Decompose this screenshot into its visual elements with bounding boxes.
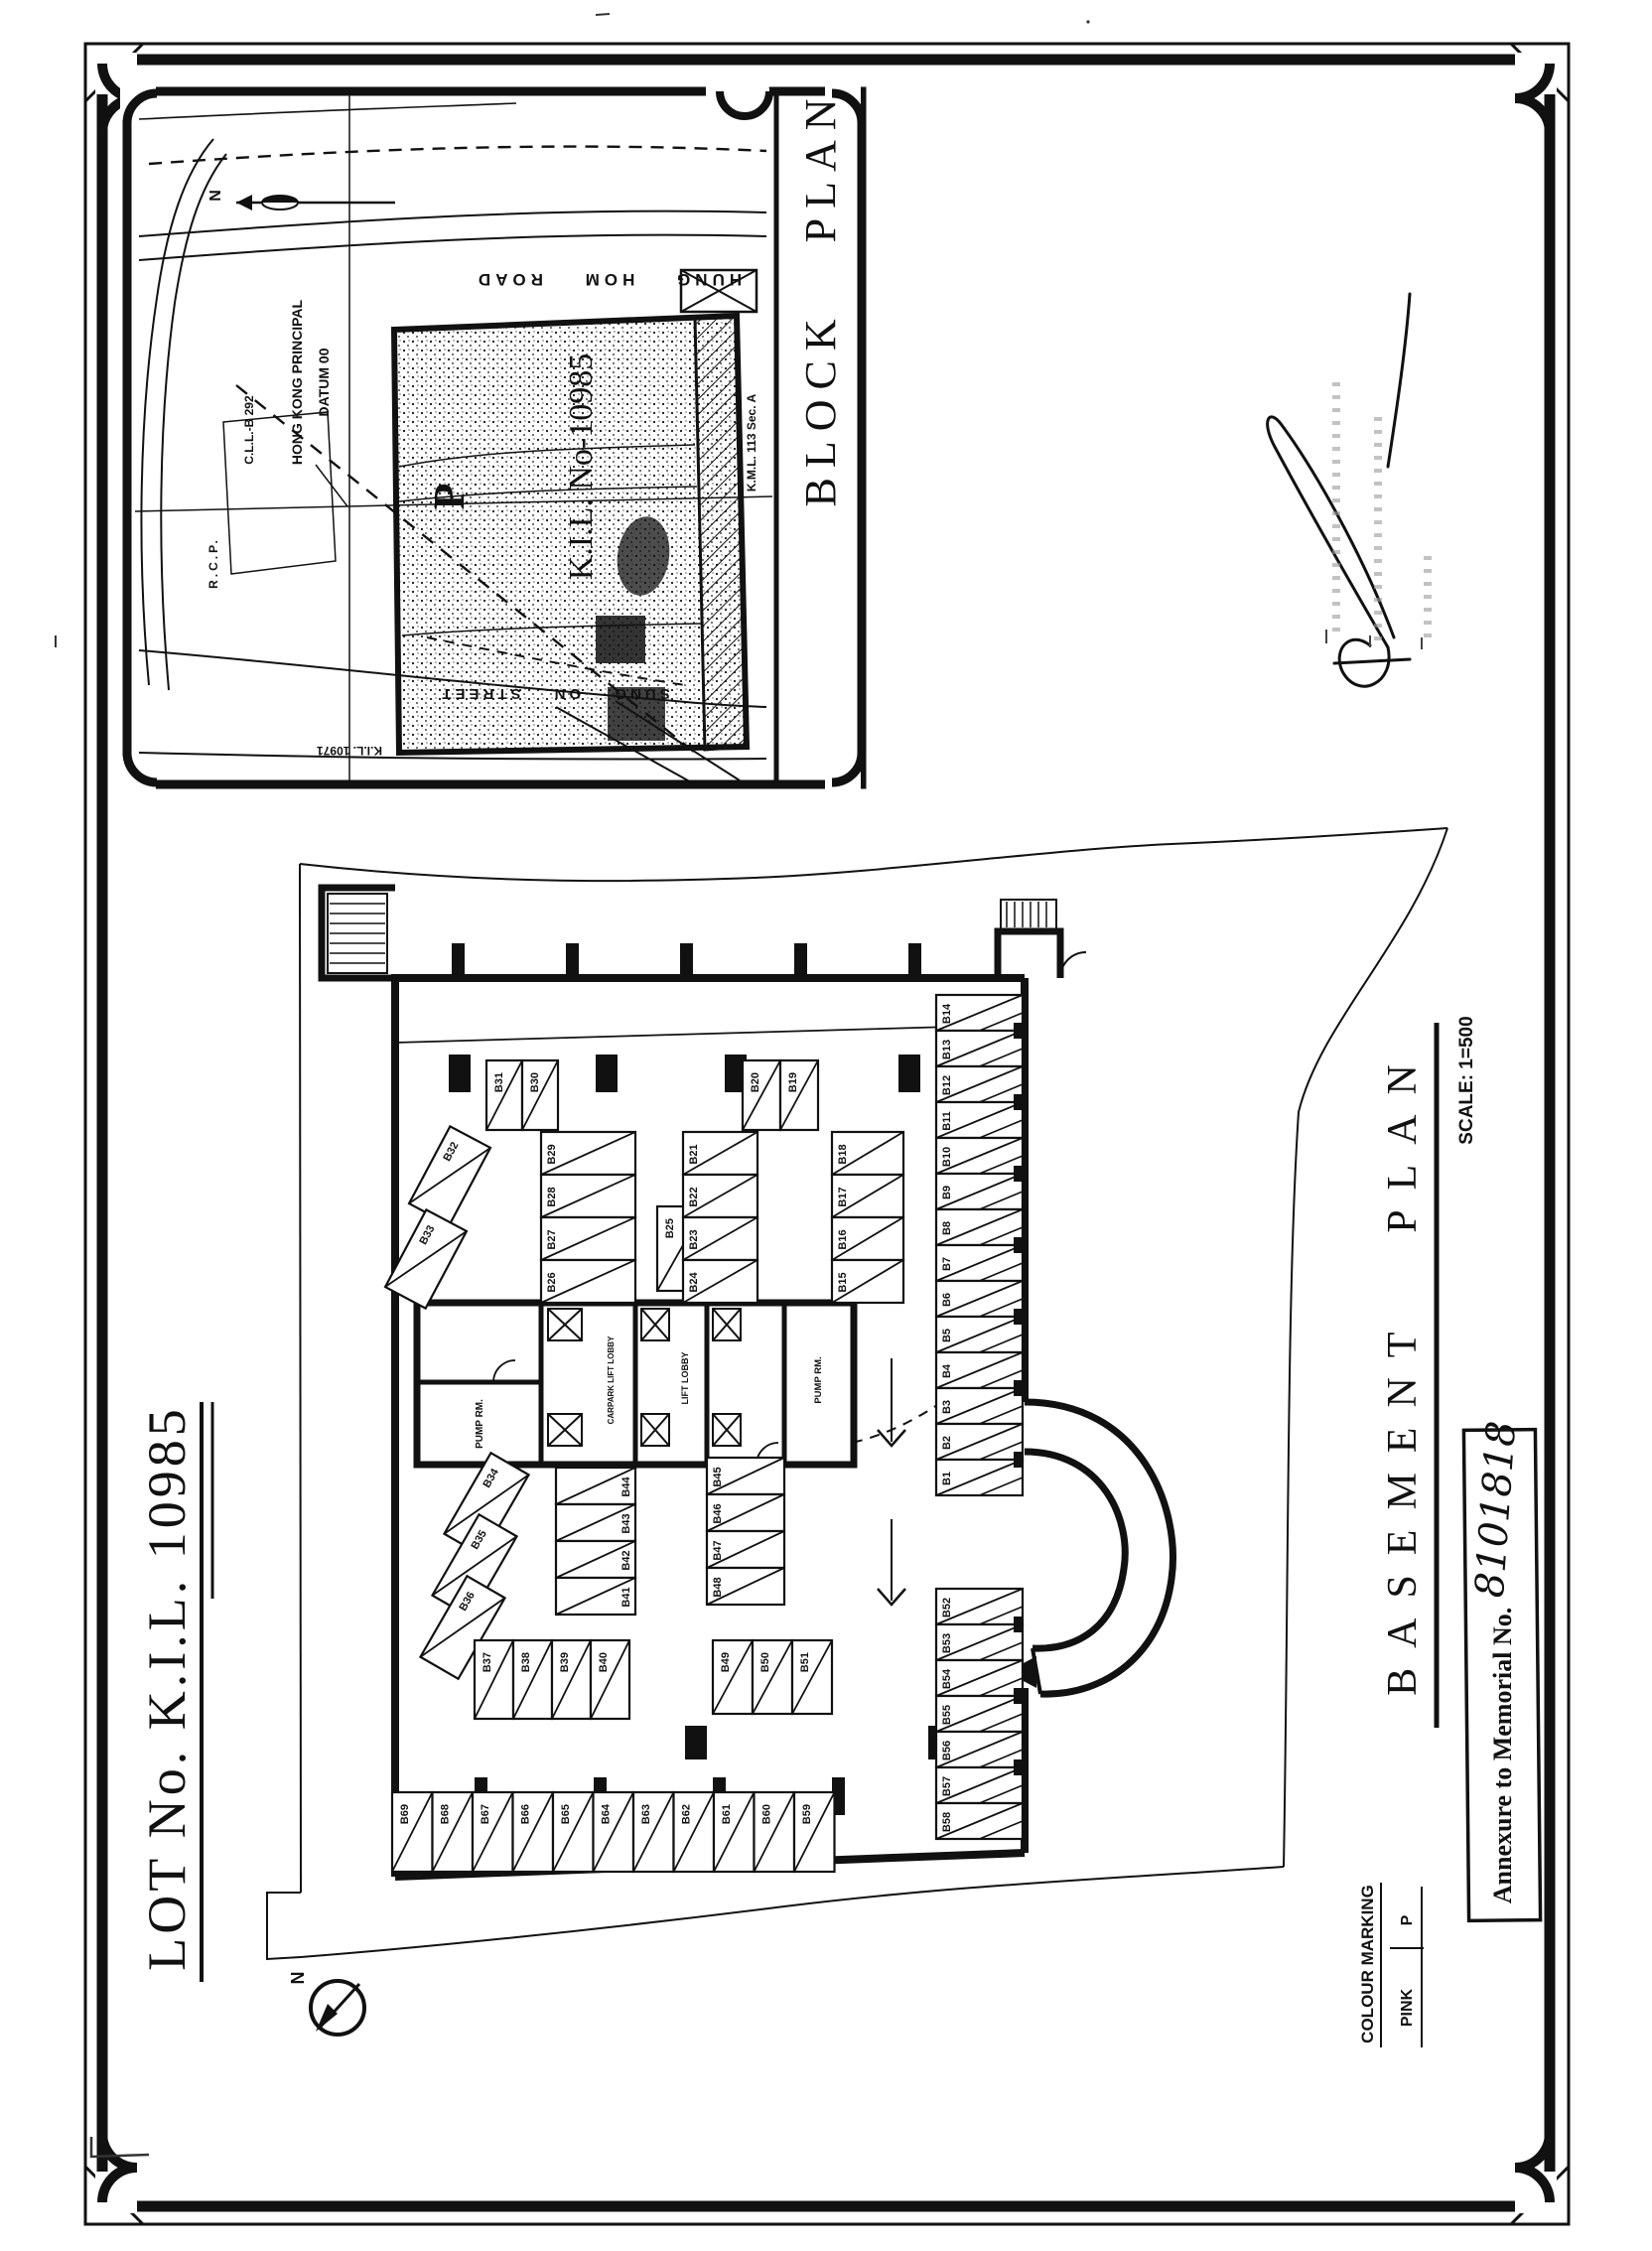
stall-label-B27: B27 — [546, 1229, 558, 1249]
stall-label-B42: B42 — [620, 1550, 632, 1570]
stall-label-B9: B9 — [941, 1186, 953, 1199]
stall-group-col-29-26: B29B28B27B26 — [541, 1132, 635, 1303]
stall-label-B30: B30 — [529, 1072, 541, 1092]
stall-label-B8: B8 — [941, 1221, 953, 1235]
colour-row-colour: PINK — [1399, 1988, 1416, 2027]
north-arrow-basement — [311, 1981, 364, 2035]
parking-stall-B9: B9 — [936, 1174, 1023, 1209]
stall-label-B47: B47 — [712, 1540, 724, 1560]
aisle-line — [395, 1025, 1023, 1043]
stall-group-row-49-51: B49B50B51 — [713, 1640, 832, 1714]
stall-label-B10: B10 — [941, 1147, 953, 1167]
stall-label-B3: B3 — [941, 1400, 953, 1414]
parking-stall-B20: B20 — [743, 1060, 780, 1130]
stall-label-B68: B68 — [440, 1804, 452, 1824]
parking-stall-B50: B50 — [753, 1640, 792, 1714]
parking-stall-B44: B44 — [556, 1468, 635, 1504]
parking-stall-B29: B29 — [541, 1132, 635, 1175]
stall-label-B22: B22 — [688, 1187, 700, 1206]
stall-label-B39: B39 — [559, 1652, 571, 1672]
parking-stall-B5: B5 — [936, 1317, 1023, 1352]
stall-label-B40: B40 — [598, 1652, 610, 1672]
parking-stall-B52: B52 — [936, 1589, 1023, 1624]
stall-label-B54: B54 — [941, 1668, 953, 1689]
parking-stall-B68: B68 — [433, 1792, 474, 1872]
stall-label-B2: B2 — [941, 1436, 953, 1450]
parking-stall-B10: B10 — [936, 1138, 1023, 1174]
room-label-lift-lobby: LIFT LOBBY — [680, 1352, 690, 1405]
stall-label-B61: B61 — [721, 1804, 733, 1824]
stall-label-B43: B43 — [620, 1513, 632, 1533]
label-lot-number: K.I.L. No-10985 — [563, 353, 600, 581]
stall-label-B21: B21 — [688, 1144, 700, 1164]
stall-label-B58: B58 — [941, 1812, 953, 1832]
parking-stall-B60: B60 — [755, 1792, 795, 1872]
scanned-plan-page: BLOCK PLAN N HUNG HOM ROAD SUNG ON STREE… — [0, 0, 1652, 2251]
stall-label-B15: B15 — [837, 1272, 849, 1292]
parking-stall-B43: B43 — [556, 1504, 635, 1541]
signature — [1268, 294, 1410, 686]
parking-stall-B38: B38 — [513, 1640, 552, 1719]
parking-stall-B65: B65 — [553, 1792, 594, 1872]
parking-stall-B61: B61 — [714, 1792, 755, 1872]
road-label-hung-hom: HUNG HOM ROAD — [474, 270, 742, 289]
parking-stall-B57: B57 — [936, 1767, 1023, 1803]
parking-stall-B47: B47 — [707, 1531, 784, 1568]
stall-label-B23: B23 — [688, 1229, 700, 1249]
parking-stall-B26: B26 — [541, 1260, 635, 1303]
stall-group-col-41-44: B44B43B42B41 — [556, 1468, 635, 1615]
parking-stall-B3: B3 — [936, 1388, 1023, 1424]
parking-stall-B42: B42 — [556, 1541, 635, 1578]
parking-stall-B46: B46 — [707, 1494, 784, 1531]
stall-label-B65: B65 — [560, 1804, 572, 1824]
parking-stall-B45: B45 — [707, 1458, 784, 1494]
parking-stall-B28: B28 — [541, 1175, 635, 1217]
stall-label-B4: B4 — [941, 1363, 953, 1378]
annexure-label: Annexure to Memorial No. — [1488, 1608, 1517, 1903]
room-label-pump-rm-2: PUMP RM. — [813, 1356, 824, 1403]
stall-label-B56: B56 — [941, 1741, 953, 1760]
parking-stall-B59: B59 — [794, 1792, 835, 1872]
parking-stall-B24: B24 — [683, 1260, 757, 1303]
stall-label-B67: B67 — [480, 1804, 491, 1824]
stall-label-B66: B66 — [520, 1804, 532, 1824]
stall-label-B26: B26 — [546, 1272, 558, 1292]
room-label-pump-rm-1: PUMP RM. — [475, 1399, 485, 1449]
label-kil-10971: K.I.L. 10971 — [317, 744, 382, 758]
stall-label-B31: B31 — [493, 1072, 505, 1092]
label-datum-line1: HONG KONG PRINCIPAL — [289, 299, 305, 465]
parking-stall-B23: B23 — [683, 1217, 757, 1260]
parking-stall-B27: B27 — [541, 1217, 635, 1260]
parking-stall-B8: B8 — [936, 1209, 1023, 1245]
stall-label-B51: B51 — [799, 1652, 811, 1672]
stall-label-B14: B14 — [941, 1003, 953, 1024]
parking-stall-B11: B11 — [936, 1102, 1023, 1138]
parking-stall-B17: B17 — [832, 1175, 903, 1217]
parking-stall-B58: B58 — [936, 1803, 1023, 1839]
stall-label-B12: B12 — [941, 1075, 953, 1095]
parking-stall-B15: B15 — [832, 1260, 903, 1303]
parking-stall-B19: B19 — [780, 1060, 818, 1130]
parking-stall-B12: B12 — [936, 1066, 1023, 1102]
parking-stall-B2: B2 — [936, 1424, 1023, 1460]
stall-group-col-18-15: B18B17B16B15 — [832, 1132, 903, 1303]
north-arrow-block-plan — [236, 195, 395, 211]
parking-stall-B63: B63 — [633, 1792, 674, 1872]
stall-group-col-21-24: B21B22B23B24 — [683, 1132, 757, 1303]
stall-group-col-52-58: B52B53B54B55B56B57B58 — [936, 1589, 1023, 1839]
parking-stall-B56: B56 — [936, 1732, 1023, 1767]
stall-label-B6: B6 — [941, 1293, 953, 1307]
parking-stall-B31: B31 — [486, 1060, 522, 1130]
stall-label-B64: B64 — [601, 1803, 613, 1824]
stall-label-B50: B50 — [759, 1652, 771, 1672]
label-parking-p: P — [425, 484, 474, 510]
annexure-stamp: Annexure to Memorial No. 8101818 — [1463, 1419, 1540, 1920]
parking-stall-B48: B48 — [707, 1568, 784, 1605]
stall-label-B7: B7 — [941, 1257, 953, 1271]
stall-label-B19: B19 — [787, 1072, 799, 1092]
parking-stall-B18: B18 — [832, 1132, 903, 1175]
staircase-top-left — [322, 888, 395, 978]
label-rcp: R.C.P. — [206, 537, 220, 589]
stall-label-B63: B63 — [640, 1804, 652, 1824]
plan-drawing: BLOCK PLAN N HUNG HOM ROAD SUNG ON STREE… — [0, 0, 1652, 2251]
parking-stall-B37: B37 — [475, 1640, 513, 1719]
stall-group-col-45-48: B45B46B47B48 — [707, 1458, 784, 1605]
stall-label-B25: B25 — [664, 1218, 676, 1238]
stall-label-B17: B17 — [837, 1187, 849, 1206]
parking-stall-B41: B41 — [556, 1578, 635, 1615]
stall-label-B46: B46 — [712, 1503, 724, 1523]
stall-label-B53: B53 — [941, 1633, 953, 1653]
parking-stall-B6: B6 — [936, 1281, 1023, 1317]
label-kml: K.M.L. 113 Sec. A — [745, 394, 758, 492]
colour-marking-title: COLOUR MARKING — [1358, 1885, 1377, 2043]
stall-label-B57: B57 — [941, 1776, 953, 1796]
stall-label-B48: B48 — [712, 1577, 724, 1597]
parking-stall-B7: B7 — [936, 1245, 1023, 1281]
colour-row-mark: P — [1399, 1914, 1416, 1925]
stall-group-row-37-40: B37B38B39B40 — [475, 1640, 629, 1719]
lot-title: LOT No. K.I.L. 10985 — [137, 1405, 197, 1970]
road-label-sung-on: SUNG ON STREET — [438, 685, 669, 702]
colour-marking-table: COLOUR MARKING PINK P — [1358, 1883, 1424, 2047]
stall-group-bottom-row: B69B68B67B66B65B64B63B62B61B60B59 — [392, 1792, 835, 1872]
stall-label-B18: B18 — [837, 1144, 849, 1164]
stall-label-B52: B52 — [941, 1598, 953, 1618]
stall-label-B28: B28 — [546, 1187, 558, 1206]
parking-stall-B62: B62 — [674, 1792, 715, 1872]
stall-label-B37: B37 — [482, 1652, 493, 1672]
block-plan-inset: BLOCK PLAN N HUNG HOM ROAD SUNG ON STREE… — [120, 67, 862, 791]
stall-label-B5: B5 — [941, 1329, 953, 1342]
stall-label-B16: B16 — [837, 1229, 849, 1249]
parking-stall-B40: B40 — [591, 1640, 629, 1719]
parking-stall-B4: B4 — [936, 1352, 1023, 1388]
parking-stall-B67: B67 — [473, 1792, 513, 1872]
stall-label-B60: B60 — [761, 1804, 773, 1824]
stall-label-B38: B38 — [520, 1652, 532, 1672]
parking-stall-B1: B1 — [936, 1460, 1023, 1495]
parking-stall-B64: B64 — [594, 1792, 634, 1872]
stall-label-B41: B41 — [620, 1587, 632, 1607]
parking-stall-B22: B22 — [683, 1175, 757, 1217]
stall-label-B62: B62 — [681, 1804, 693, 1824]
north-label-basement: N — [288, 1972, 308, 1985]
parking-stall-B30: B30 — [522, 1060, 558, 1130]
stall-label-B20: B20 — [750, 1072, 761, 1092]
stall-group-angled-32-33: B32B33 — [385, 1126, 490, 1308]
parking-stall-B66: B66 — [513, 1792, 554, 1872]
parking-stall-B53: B53 — [936, 1624, 1023, 1660]
stall-group-pair-20-19: B20B19 — [743, 1060, 818, 1130]
parking-stall-B54: B54 — [936, 1660, 1023, 1696]
stall-label-B49: B49 — [720, 1652, 732, 1672]
basement-plan-title: BASEMENT PLAN — [1380, 1045, 1426, 1696]
basement-plan: PUMP RM. CARPARK LIFT LOBBY LIFT LOBBY P… — [267, 828, 1477, 2035]
label-datum-line2: DATUM 00 — [316, 348, 332, 416]
stall-label-B1: B1 — [941, 1472, 953, 1485]
stall-label-B69: B69 — [399, 1804, 411, 1824]
parking-stall-B39: B39 — [552, 1640, 591, 1719]
stall-label-B29: B29 — [546, 1144, 558, 1164]
parking-stall-B16: B16 — [832, 1217, 903, 1260]
parking-stall-B49: B49 — [713, 1640, 753, 1714]
parking-stall-B51: B51 — [792, 1640, 832, 1714]
parking-stall-B32: B32 — [409, 1126, 490, 1224]
stall-label-B45: B45 — [712, 1467, 724, 1486]
stall-group-pair-30-31: B31B30 — [486, 1060, 558, 1130]
scale-label: SCALE: 1=500 — [1456, 1016, 1477, 1144]
stall-label-B24: B24 — [688, 1272, 700, 1293]
parking-stall-B14: B14 — [936, 995, 1023, 1031]
stall-label-B59: B59 — [801, 1804, 813, 1824]
stall-label-B13: B13 — [941, 1040, 953, 1059]
memorial-number: 8101818 — [1467, 1419, 1525, 1599]
parking-stall-B21: B21 — [683, 1132, 757, 1175]
stall-label-B11: B11 — [941, 1111, 953, 1131]
stall-label-B44: B44 — [620, 1477, 632, 1497]
stall-label-B55: B55 — [941, 1705, 953, 1725]
staircase-top-right — [998, 900, 1086, 978]
parking-stall-B13: B13 — [936, 1031, 1023, 1066]
label-cll: C.L.L.-B 292 — [242, 395, 256, 465]
parking-stall-B55: B55 — [936, 1696, 1023, 1732]
stall-group-right-col: B14B13B12B11B10B9B8B7B6B5B4B3B2B1 — [936, 995, 1023, 1495]
parking-stall-B69: B69 — [392, 1792, 433, 1872]
room-label-carpark-lift-lobby: CARPARK LIFT LOBBY — [607, 1336, 616, 1424]
block-plan-title: BLOCK PLAN — [796, 88, 845, 506]
north-label: N — [207, 190, 224, 202]
